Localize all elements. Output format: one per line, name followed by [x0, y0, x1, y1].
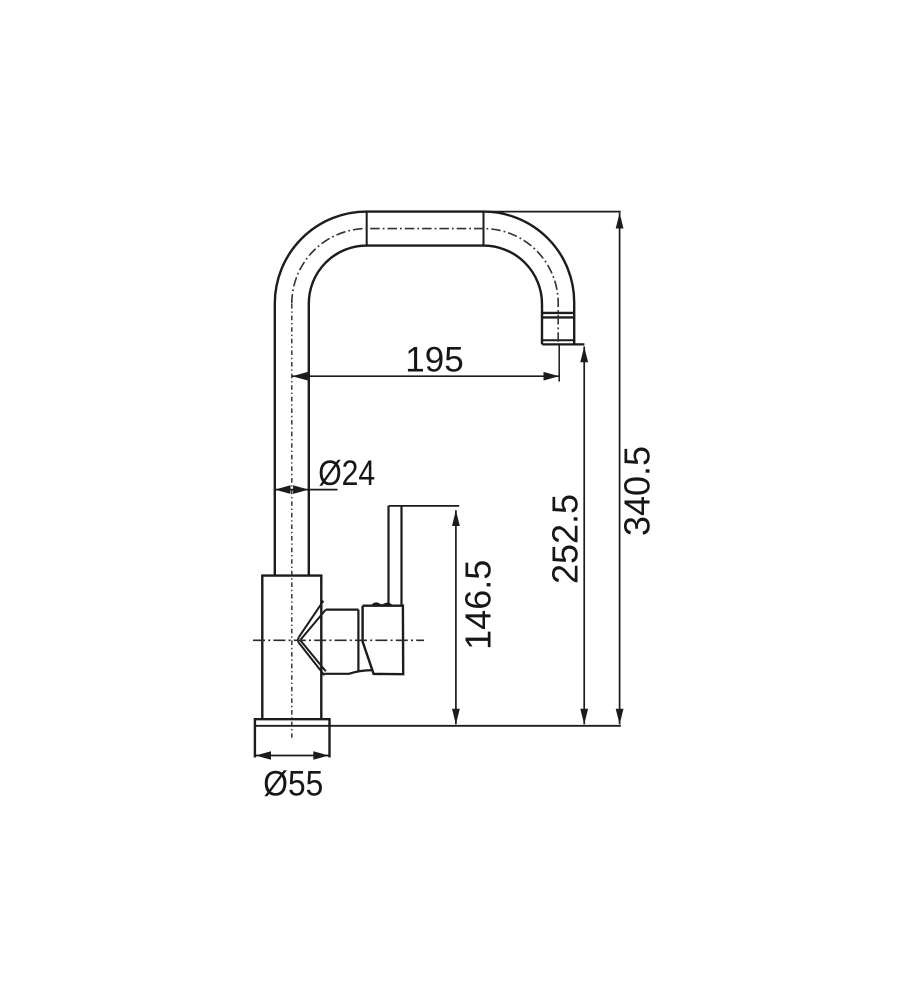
svg-text:146.5: 146.5 [458, 560, 499, 650]
svg-text:Ø24: Ø24 [318, 454, 375, 493]
svg-text:Ø55: Ø55 [263, 765, 323, 804]
svg-text:340.5: 340.5 [617, 446, 658, 536]
svg-text:252.5: 252.5 [545, 494, 586, 584]
svg-text:195: 195 [405, 341, 463, 380]
